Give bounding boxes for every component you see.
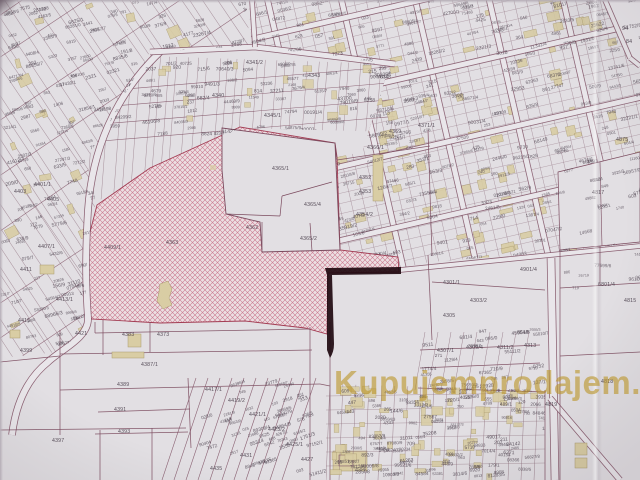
svg-text:452: 452: [155, 105, 162, 110]
svg-text:99310: 99310: [191, 84, 204, 89]
svg-text:9491/3: 9491/3: [204, 82, 220, 88]
svg-text:00191/4: 00191/4: [304, 110, 322, 116]
svg-text:095/0: 095/0: [485, 335, 498, 342]
svg-text:8548: 8548: [517, 330, 529, 336]
svg-text:08366: 08366: [507, 457, 520, 462]
svg-text:447: 447: [348, 400, 357, 407]
svg-text:4875: 4875: [616, 137, 628, 143]
svg-text:2066: 2066: [530, 402, 541, 407]
svg-text:750: 750: [457, 404, 465, 409]
svg-text:489/1: 489/1: [500, 402, 512, 408]
svg-text:814: 814: [254, 88, 262, 94]
svg-text:4819: 4819: [545, 402, 557, 408]
svg-text:5710: 5710: [464, 444, 475, 451]
svg-text:7014/4: 7014/4: [481, 448, 496, 453]
svg-text:4363: 4363: [166, 240, 178, 246]
svg-text:3959: 3959: [110, 123, 120, 128]
svg-text:2030/5: 2030/5: [351, 446, 363, 450]
photo-corner-smudge: [0, 0, 20, 16]
svg-text:741: 741: [538, 415, 546, 420]
svg-text:4352: 4352: [359, 175, 371, 181]
svg-text:34142: 34142: [506, 441, 520, 448]
svg-text:4405: 4405: [47, 197, 59, 203]
svg-text:137/1: 137/1: [533, 379, 546, 386]
svg-text:4309/4: 4309/4: [466, 345, 483, 351]
svg-text:4419/2: 4419/2: [228, 398, 245, 404]
svg-text:4373: 4373: [157, 332, 169, 338]
svg-text:4399: 4399: [20, 348, 32, 354]
svg-text:84209/2: 84209/2: [115, 114, 132, 120]
svg-text:4421: 4421: [75, 331, 87, 337]
svg-text:3060: 3060: [357, 87, 367, 93]
svg-text:0752: 0752: [533, 363, 545, 370]
svg-text:33137/3: 33137/3: [450, 422, 463, 427]
svg-text:4901/4: 4901/4: [520, 267, 537, 273]
svg-text:26719: 26719: [578, 273, 589, 277]
svg-text:10903/3: 10903/3: [382, 472, 399, 478]
svg-text:131: 131: [445, 398, 453, 403]
svg-text:28508: 28508: [355, 469, 370, 475]
svg-text:4389: 4389: [117, 382, 129, 388]
svg-text:886: 886: [563, 269, 570, 275]
svg-text:4401/1: 4401/1: [34, 182, 51, 188]
paper-crease: [592, 0, 602, 480]
svg-text:160: 160: [490, 171, 498, 177]
svg-text:11549: 11549: [249, 95, 259, 99]
svg-text:719: 719: [572, 285, 580, 290]
svg-text:144/6: 144/6: [390, 408, 403, 414]
svg-text:74165/9: 74165/9: [634, 251, 640, 257]
svg-text:311: 311: [425, 469, 431, 473]
svg-text:70640/3: 70640/3: [216, 66, 234, 72]
svg-text:4369: 4369: [389, 129, 401, 135]
cadastral-map-photo: 191/8231/723267/468966/32082866/26874/72…: [0, 0, 640, 480]
svg-text:8824: 8824: [201, 131, 212, 137]
svg-text:4383: 4383: [122, 332, 134, 338]
svg-text:1129/4: 1129/4: [444, 357, 458, 363]
svg-text:8813: 8813: [474, 474, 483, 479]
svg-text:5216: 5216: [354, 393, 365, 399]
svg-text:33387: 33387: [275, 96, 286, 101]
svg-text:4353: 4353: [359, 189, 371, 195]
svg-text:53381: 53381: [432, 472, 443, 476]
svg-text:6757/7: 6757/7: [370, 441, 383, 447]
svg-text:2302: 2302: [342, 450, 350, 454]
svg-text:4397: 4397: [52, 438, 64, 444]
svg-text:68859/8: 68859/8: [434, 388, 447, 392]
svg-text:4028: 4028: [460, 395, 471, 401]
svg-text:4305: 4305: [443, 313, 455, 319]
svg-text:4365/2: 4365/2: [300, 236, 317, 242]
svg-text:271/6: 271/6: [421, 403, 432, 408]
svg-text:609: 609: [341, 388, 350, 395]
svg-text:4852/6: 4852/6: [384, 389, 397, 394]
svg-text:2986: 2986: [187, 126, 196, 131]
svg-text:90816: 90816: [501, 416, 512, 420]
svg-text:4371/1: 4371/1: [418, 123, 435, 129]
svg-text:748: 748: [491, 376, 498, 382]
svg-text:448/9: 448/9: [441, 462, 453, 467]
svg-text:2148: 2148: [288, 83, 296, 87]
svg-text:299: 299: [378, 65, 387, 71]
svg-text:947: 947: [478, 328, 487, 335]
svg-text:4411: 4411: [20, 267, 32, 273]
svg-text:53236: 53236: [260, 81, 273, 87]
photo-edge-shade: [0, 0, 640, 3]
svg-text:215: 215: [334, 459, 343, 465]
svg-text:792: 792: [524, 411, 531, 416]
svg-text:682/4: 682/4: [197, 95, 210, 101]
svg-text:96109: 96109: [628, 277, 640, 283]
svg-text:4815: 4815: [624, 298, 636, 304]
svg-text:0534: 0534: [511, 407, 521, 413]
svg-text:4431: 4431: [240, 453, 252, 459]
svg-text:5258: 5258: [364, 98, 376, 104]
svg-text:709: 709: [406, 441, 415, 447]
svg-text:4340: 4340: [212, 93, 224, 99]
svg-text:688/7: 688/7: [348, 459, 360, 464]
svg-text:5386: 5386: [372, 403, 381, 409]
svg-text:4435: 4435: [210, 466, 222, 472]
svg-text:4409/1: 4409/1: [104, 245, 121, 251]
svg-text:0371: 0371: [435, 418, 443, 422]
svg-text:4365/4: 4365/4: [304, 202, 321, 208]
svg-text:6260: 6260: [185, 92, 196, 97]
svg-text:8338/5: 8338/5: [518, 466, 532, 471]
svg-text:24787: 24787: [429, 383, 440, 388]
svg-text:90341/2: 90341/2: [370, 74, 388, 81]
svg-text:5659: 5659: [633, 78, 640, 86]
svg-text:4341/2: 4341/2: [246, 60, 263, 66]
svg-text:4413/1: 4413/1: [56, 297, 73, 303]
svg-text:179/1: 179/1: [488, 463, 500, 468]
svg-text:4307/1: 4307/1: [437, 348, 454, 354]
svg-text:37815/1: 37815/1: [174, 105, 188, 110]
svg-text:4345/1: 4345/1: [264, 113, 281, 119]
svg-text:2037: 2037: [145, 66, 156, 72]
svg-text:4366/1: 4366/1: [367, 145, 384, 151]
svg-text:892/3: 892/3: [361, 452, 374, 458]
svg-text:3106: 3106: [399, 397, 409, 402]
svg-text:7655/3: 7655/3: [529, 328, 540, 332]
svg-text:443: 443: [346, 409, 355, 416]
svg-text:4407/1: 4407/1: [38, 244, 55, 250]
svg-text:9908: 9908: [494, 469, 505, 475]
svg-text:18299/3: 18299/3: [507, 396, 523, 401]
svg-text:6135/7: 6135/7: [314, 88, 328, 94]
svg-text:4365/1: 4365/1: [272, 166, 289, 172]
svg-text:496: 496: [368, 398, 376, 403]
svg-text:40725: 40725: [180, 61, 193, 66]
svg-text:710/9: 710/9: [490, 366, 503, 373]
svg-text:45577: 45577: [287, 76, 300, 81]
svg-text:4417/1: 4417/1: [205, 387, 222, 393]
svg-text:3946: 3946: [498, 442, 509, 448]
svg-text:208/2: 208/2: [227, 77, 237, 83]
photo-edge-shade: [0, 0, 3, 480]
svg-text:9511: 9511: [422, 342, 434, 349]
svg-text:4403: 4403: [14, 189, 26, 195]
svg-text:61263: 61263: [400, 457, 414, 464]
svg-text:7660: 7660: [347, 92, 357, 97]
svg-text:448/1: 448/1: [146, 78, 156, 83]
svg-text:4423/2: 4423/2: [268, 427, 285, 433]
svg-text:66889/8: 66889/8: [330, 119, 344, 125]
svg-text:4303/2: 4303/2: [470, 298, 487, 304]
svg-text:4415: 4415: [18, 318, 30, 324]
svg-text:6371: 6371: [503, 450, 515, 456]
svg-text:494: 494: [358, 435, 366, 440]
svg-text:920: 920: [173, 65, 181, 71]
svg-text:063: 063: [458, 455, 466, 460]
svg-text:215: 215: [472, 384, 480, 389]
svg-text:816: 816: [350, 106, 358, 112]
svg-text:791: 791: [420, 394, 428, 400]
svg-text:4393: 4393: [118, 429, 130, 435]
svg-text:4789: 4789: [483, 400, 493, 406]
svg-text:4301/1: 4301/1: [443, 280, 460, 286]
svg-text:4313: 4313: [524, 343, 536, 349]
svg-text:4391: 4391: [114, 407, 126, 413]
svg-text:919: 919: [462, 237, 471, 244]
svg-text:4362: 4362: [246, 225, 258, 231]
svg-text:849: 849: [601, 183, 609, 189]
svg-text:84: 84: [626, 39, 632, 45]
svg-text:4354/2: 4354/2: [356, 212, 373, 218]
svg-text:4425/1: 4425/1: [286, 442, 303, 448]
map-canvas: 191/8231/723267/468966/32082866/26874/72…: [0, 0, 640, 480]
svg-text:4427: 4427: [301, 457, 313, 463]
svg-text:4818: 4818: [601, 379, 613, 385]
svg-text:9902: 9902: [409, 420, 418, 425]
svg-text:4343: 4343: [308, 73, 320, 79]
svg-text:4421/1: 4421/1: [249, 412, 266, 418]
svg-text:4387/1: 4387/1: [141, 362, 158, 368]
svg-text:6920: 6920: [470, 467, 481, 473]
svg-text:957: 957: [559, 44, 568, 51]
svg-text:67365: 67365: [479, 370, 492, 376]
svg-text:7940: 7940: [339, 86, 350, 91]
svg-text:4333: 4333: [383, 420, 394, 426]
svg-text:367: 367: [501, 374, 509, 379]
svg-text:4311/2: 4311/2: [497, 345, 514, 351]
svg-text:9909: 9909: [232, 105, 240, 109]
svg-text:237: 237: [187, 99, 195, 105]
svg-text:94: 94: [622, 26, 628, 32]
